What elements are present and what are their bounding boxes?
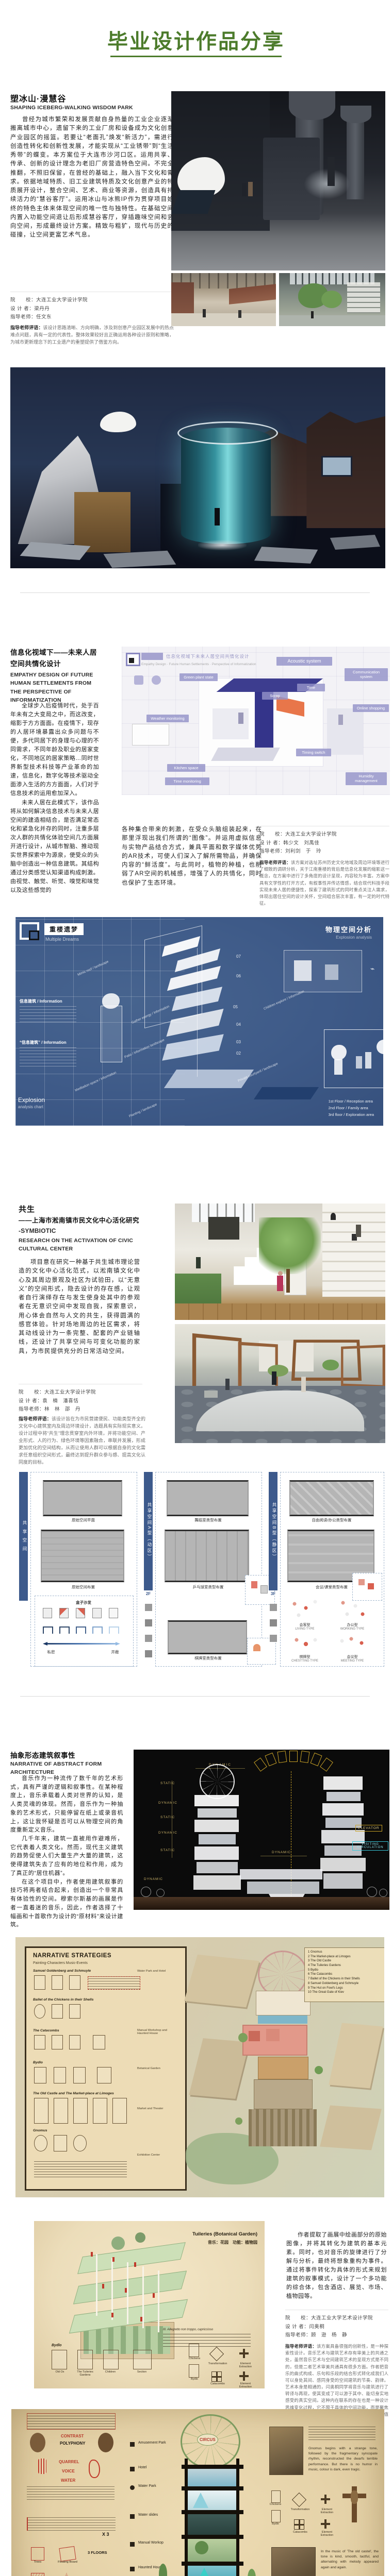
diagram-empathy-collage: 信息化视域下未来人居空间共情化设计 Empathy Design · Futur… [122,647,390,795]
project1-body: 曾经为城市繁荣和发展贡献自身热量的工业企业逐渐搬离城市中心，遗留下来的工业厂房和… [10,115,174,240]
gallery-floors [347,282,380,313]
header-chip [141,653,163,660]
render-culture-center-atrium [175,1204,385,1320]
tuileries-title: Tuileries (Botanical Garden) [192,2231,257,2237]
strategy-box-6a [34,2135,47,2151]
credit-advisor: 指导老师：顾 逊 杨 静 [285,2331,388,2340]
d-transformation-diamond [292,2493,306,2507]
plan-3a [289,1480,374,1516]
type2-en-label: WORKING TYPE [331,1628,374,1631]
figure-silhouette [215,508,220,526]
quote-box [132,724,169,745]
poster-tower-section: CONTRAST POLYPHONY QUARREL VOICE WATER X… [11,2409,384,2576]
chair-grey-1 [260,1585,268,1594]
stone-bench [204,1391,218,1398]
strategy-box-5c [73,2098,88,2124]
project2-body-left: 全球步入后疫情时代，处于百年未有之大变局之中，而这改变，缩影于方方面面。在疫情下… [10,702,99,895]
tower-l-2 [198,1808,237,1818]
columns [96,2254,97,2316]
render-night-plaza [10,367,385,568]
poster-para1: Gnomus begins with a strange tone, follo… [308,2446,378,2472]
advisor-value: 顾 逊 杨 静 [311,2332,347,2338]
tower-r-8 [323,1873,363,1889]
project4-body-c: 在这个项目中，作者使用建筑叙事的技巧将两者结合起来，创造出一个非常具有体验性的空… [10,1878,123,1929]
chair-red-2 [368,1583,374,1589]
bp-detail-box [294,960,312,981]
warm-glass-lobby [74,492,130,552]
diagram-black-towers: STATIC DYNAMIC STATIC DYNAMIC STATIC DYN… [134,1750,389,1910]
dark-mural [208,1217,239,1240]
comment-label: 指导老师评语： [259,860,291,865]
icon-label-amusement: Amusement Park [138,2441,166,2445]
caption-5: Exhibition Center [137,2154,176,2157]
wood-floor [175,1303,385,1320]
label-dynamic-2: DYNAMIC [158,1831,177,1835]
iso-figure-1 [238,713,243,724]
walkway [279,315,385,326]
icon-water-park [130,2485,135,2490]
advisor-label: 指导老师： [259,849,285,854]
credit-designer: 设 计 者：梁丹丹 [10,305,174,314]
strategy-box-6b [54,2135,67,2151]
music-score-red-box [88,1976,140,1990]
plan-bar-3f: 3F [269,1591,277,1596]
strategy-box-4d [97,2067,111,2083]
strategy-box-5a [34,2098,48,2124]
project3-body-p: 项目意在研究一种基于共生城市理论营造的文化中心活化范式，以淞南镇文化中心及其周边… [19,1258,140,1356]
project2-body-c: 各种集合带来的刺激，在受众头脑组装起来，在那里浮现出我们所谓的“图像”。并运用虚… [122,825,262,888]
tree-outline-4 [379,1889,387,1897]
cluster-meeting [336,1634,369,1654]
city-block-4 [320,2106,382,2150]
sofa-iso-5 [109,1608,118,1618]
project4-body: 音乐作为一种流传了数千年的艺术形式，具有严谨的逻辑和叙事性。在某种程度上，音乐承… [10,1774,123,1929]
mountains-box [31,2573,44,2576]
d-extraction-cross-2 [321,2519,330,2529]
sofa-iso-1 [43,1608,52,1618]
caption-3: Botanical Garden [137,2067,176,2070]
project1-body-p: 曾经为城市繁荣和发展贡献自身热量的工业企业逐渐搬离城市中心，遗留下来的工业厂房和… [10,115,174,240]
catacombs-label: Catacombs [207,2382,228,2385]
d-transformation-label: Transformation [290,2508,311,2511]
open-label: 开敞 [105,1649,125,1655]
circus-label: CIRCUS [197,2434,218,2446]
bracket-3 [76,1626,86,1634]
trees-box [31,2547,44,2561]
bp-info2: “信息建筑” / Information [20,1040,67,1045]
d-bydlo-label: Bydlo [267,2522,284,2526]
bp-axis-line [197,948,198,1077]
credit-designer: 设 计 者：韩少文 刘禹佳 [259,839,389,848]
type4-zh: 会议型 [347,1655,358,1659]
credit-designer: 设 计 者：袁 楠 潘喜恬 [19,1397,142,1406]
chip-time: Time [297,684,325,691]
project2-body-a: 全球步入后疫情时代，处于百年未有之大变局之中，而这改变，缩影于方方面面。在疫情下… [10,702,99,799]
project4-body-a: 音乐作为一种流传了数千年的艺术形式，具有严谨的逻辑和叙事性。在某种程度上，音乐承… [10,1774,123,1835]
pictogram-meeting [270,1604,277,1611]
privacy-label: 私密 [41,1649,61,1655]
school-value: 大连工业大学设计学院 [285,832,337,837]
tower-fill-pool [188,2469,236,2486]
plan-cap-2a: 舞蹈室类型布置 [155,1517,261,1523]
pictogram-reading [270,1619,277,1626]
plan-1a [43,1480,122,1516]
strategies-title: NARRATIVE STRATEGIES [33,1953,111,1959]
strategy-box-3b [52,2035,63,2049]
red-figures [91,2252,93,2257]
chip-scrap: Scrap [262,692,288,700]
bp-num-04: 04 [236,1022,241,1027]
project4-body-b: 几千年来，建筑一直被用作避难所，它代表着人类文化。然而，现代主义建筑的趋势促使人… [10,1835,123,1878]
caption-2: Manual Workshop and Haunted House [137,2029,176,2035]
arch-block-7 [320,1757,333,1771]
pictogram-pingpong [145,1635,152,1642]
list-item-3: 3 The Old Castle [308,1959,384,1963]
project2-body-b: 未来人居在此模式下，该作品将从如何解决信息技术与未来人居空间的建造相结合，是否满… [10,799,99,895]
tower-frame-right [236,2459,239,2576]
project2-title-en: EMPATHY DESIGN OF FUTURE HUMAN SETTLEMEN… [10,671,94,704]
collage-header: 信息化视域下未来人居空间共情化设计 [166,653,250,659]
sofa-iso-2 [59,1608,69,1618]
transformation-label: Transformation [207,2362,228,2365]
walking-figure-1 [272,1371,276,1385]
bracket-4 [92,1626,103,1634]
slab-1 [77,2242,186,2274]
plan-2c [168,1620,247,1654]
type3-zh: 棋牌型 [300,1655,311,1659]
list-item-5: 5 Bydlo [308,1968,384,1973]
strategy-box-5d [93,2098,107,2124]
strategy-box-1a [34,1975,45,1990]
ground-strip [134,1897,389,1910]
figure-upper [356,1225,361,1237]
type4-label: 会议型 [331,1654,374,1659]
tower-fill-haunted [188,2514,236,2535]
tower-r-1 [323,1776,363,1790]
logo-inner [129,658,134,663]
extraction-label-1: Element Extraction [234,2362,257,2368]
project1-comment: 指导老师评语：该设计思路清晰、方向明确，涉及到创意产业园区发展中的热点难点问题，… [10,325,174,346]
pink-box-1 [249,2031,260,2041]
tower-top-box [256,1991,311,2015]
comment-label: 指导老师评语： [285,2344,317,2349]
chip-communication: Communication system [345,668,388,681]
project3-body: 项目意在研究一种基于共生城市理论营造的文化中心活化范式，以淞南镇文化中心及其周边… [19,1258,140,1356]
school-value: 大连工业大学艺术设计学院 [311,2315,373,2321]
label-dynamic-3: DYNAMIC [144,1877,163,1881]
sofa-iso-3 [76,1608,85,1618]
cluster-living [288,1598,321,1620]
chip-online-shopping: Online shopping [353,704,389,712]
bracket-5 [109,1626,119,1634]
chair-pink [358,1579,365,1585]
d-chickens-box [271,2490,281,2503]
credit-school: 院 校：大连工业大学设计学院 [259,831,389,839]
iso-wall-dark [255,692,273,749]
strategy-box-5b [54,2098,68,2124]
designer-label: 设 计 者： [285,2324,309,2330]
row-header-2: Ballet of the Chickens in their Shells [33,1998,93,2002]
bp-planter-3 [365,1052,371,1069]
water-label: WATER [61,2478,75,2483]
row-label-3: Children [100,2370,121,2374]
arch-block-1 [254,1757,267,1771]
chip-green-plant: Green plant state [179,673,218,681]
diagram-shared-space-plans: 共 享 空 间 原始空间平面 原始空间布置 盒子沙发 私密 开敞 共享空间A型（… [18,1472,384,1668]
chip-acoustic: Acoustic system [276,657,332,666]
wifi-icon: ⌁ [370,964,374,973]
credit-school: 院 校：大连工业大学设计学院 [19,1388,142,1397]
tower-slab-3 [182,2510,243,2514]
credit-designer: 设 计 者：闫奥桐 [285,2323,388,2332]
icon-water-slides [130,2514,135,2519]
slab-2 [73,2270,187,2304]
bracket-1 [43,1626,53,1634]
city-block-3 [329,2023,383,2089]
pictogram-chess [145,1650,152,1657]
magazine-page: 毕业设计作品分享 塑冰山·漫慧谷 SHAPING ICEBERG-WALKING… [0,0,392,2576]
project2-body-right: 各种集合带来的刺激，在受众头脑组装起来，在那里浮现出我们所谓的“图像”。并运用虚… [122,825,262,888]
list-item-6: 6 The Catacombs [308,1972,384,1977]
tower-slab-5 [182,2562,243,2566]
project2-comment: 指导老师评语：该方案对选址苏州历史文化地域及周边环境等进行了细致的调研分析，关于… [259,859,389,907]
label-dynamic-1: DYNAMIC [158,1801,177,1805]
painting-castle [271,2547,316,2576]
row-header-3: The Catacombs [33,2029,59,2032]
tree-outline-2 [156,1889,165,1897]
bydlo-box-4 [133,2350,152,2369]
window-right [321,456,352,477]
strategy-box-1b [52,1975,63,1990]
bp-num-05: 05 [233,1005,238,1009]
garden-tree [195,2541,208,2554]
poster-tuileries: Tuileries (Botanical Garden) 音乐：花园 功能：植物… [34,2221,265,2388]
bp-info1: 信息建筑 / Information [20,998,62,1004]
row-header-5: The Old Castle and The Market-place at L… [33,2092,114,2095]
cluster-working [336,1598,369,1620]
strategy-box-4b [54,2067,66,2083]
cylinder-ring [177,421,278,445]
icon-label-water-slides: Water slides [138,2513,158,2517]
figure-head [278,1271,283,1276]
tower-r-3 [322,1803,364,1816]
bp-title: 重楼遗梦 [44,923,84,935]
project4-body-right: 作者提取了画展中绘画部分的原始图像，并将其转化为建筑的基本元素。同时，也对音乐的… [286,2231,387,2301]
bp-explosion: Explosion [18,1096,45,1104]
school-label: 院 校： [10,297,36,303]
poster-para2: In the music of 'The old castel', the to… [321,2549,379,2570]
street-tree-2 [248,2569,256,2576]
poster-tree-1 [238,2033,248,2042]
list-item-8: 8 Samuel Goldenberg and Schmuyle [308,1981,384,1986]
roof-tree-1 [111,2236,125,2250]
strategy-box-2b [52,2004,63,2019]
type1-label: 会客型 [283,1622,326,1628]
sofa-iso-4 [92,1608,102,1618]
d-extraction-label: Element Extraction [316,2508,338,2514]
advisor-label: 指导老师： [285,2332,311,2338]
pink-box-2 [266,2029,280,2041]
base-trees [84,2326,170,2354]
elevator-label: ELEVATOR [355,1825,382,1832]
tower-l-6 [197,1862,238,1873]
bp-floor-3: 3rd floor / Exploration area [329,1112,374,1118]
project1-title-en: SHAPING ICEBERG-WALKING WISDOM PARK [10,104,165,112]
school-label: 院 校： [19,1389,44,1395]
caption-1: Water Park and Hotel [137,1969,176,1974]
row-header-4: Bydlo [33,2061,43,2064]
walking-figure-3 [225,1379,230,1390]
chickens-box [189,2344,199,2357]
bp-tree [102,993,120,1009]
label-static-1: STATIC [160,1782,175,1785]
list-item-1: 1 Gnomus [308,1950,384,1955]
render-atrium-court [279,273,385,326]
strategy-box-6c [73,2135,87,2151]
tower-wood-deck [258,2057,308,2079]
tower-slab-2 [182,2486,243,2490]
plan-cap-2c: 棋牌室类型布置 [155,1655,261,1661]
bydlo-label: Bydlo [187,2378,202,2381]
tower-base [249,2109,317,2146]
column-capital-2 [340,106,371,123]
arch-block-2 [265,1753,276,1766]
pictogram-dance [145,1604,152,1611]
d-catacombs-label: Catacombs [290,2531,311,2534]
walking-figure-2 [301,1377,306,1392]
strategy-box-5e [112,2098,127,2124]
strategy-box-2a [34,2004,45,2019]
plan-cap-3a: 自由阅读/办公类型布置 [280,1517,383,1523]
project4-credits: 院 校：大连工业大学艺术设计学院 设 计 者：闫奥桐 指导老师：顾 逊 杨 静 [285,2310,388,2340]
floors-label: 3 FLOORS [88,2550,107,2555]
comment-label: 指导老师评语： [10,325,43,330]
chip-humidity: Humidity management [346,772,387,785]
chickens-label: Chickens [187,2357,202,2360]
tower-slab-1 [182,2465,243,2469]
bydlo-box-1 [52,2350,67,2369]
project3-credits: 院 校：大连工业大学设计学院 设 计 者：袁 楠 潘喜恬 指导老师：林 林 邵 … [19,1384,142,1414]
portrait-2 [98,2433,113,2452]
d-chickens-label: Chickens [267,2503,284,2506]
movement-list: 1 Gnomus 2 The Market-place at Limoges 3… [304,1947,384,2002]
type4-en-label: MEETING TYPE [331,1659,374,1663]
cylinder-sketch [38,2459,46,2474]
bp-planter-1 [334,1059,342,1075]
polyphony-label: POLYPHONY [60,2441,86,2446]
tower-l-5 [194,1846,239,1860]
column-capital-1 [289,91,335,120]
bp-info2-lines [20,1046,76,1066]
pyramid-box [60,2573,73,2576]
person-3 [311,311,314,318]
bp-right-title: 物理空间分析 [325,924,372,934]
comment-text: 该方案对选址苏州历史文化地域及周边环境等进行了细致的调研分析，关于江南重楼的背后… [259,860,389,906]
bp-info1-lines [20,1005,76,1022]
advisor-value: 任文东 [36,314,52,320]
poster-tree-2 [315,2066,323,2074]
collage-subheader: Empathy Design · Future Human Settlement… [141,663,256,666]
plan-bar-2f: 2F [144,1591,153,1596]
strategy-box-3a [34,2035,45,2049]
iso-volume-2 [327,708,363,755]
strategy-box-3d [93,2035,105,2049]
transformation-diamond [209,2347,224,2361]
chip-time-monitoring: Time monitoring [165,777,209,785]
project4-title-zh: 抽象形态建筑叙事性 [10,1750,75,1760]
music-block-3 [27,2517,116,2531]
type3-label: 棋牌型 [283,1654,326,1659]
figure-1 [242,183,247,196]
trees-label: Trees [29,2561,46,2564]
bp-subtitle: Multiple Dreams [45,937,79,942]
podium-1 [240,1869,322,1879]
credit-school: 院 校：大连工业大学艺术设计学院 [285,2314,388,2323]
school-value: 大连工业大学设计学院 [36,297,88,303]
shrub-1 [268,1365,289,1377]
bp-logo-inner [29,930,39,940]
bracket-2 [59,1626,70,1634]
music-caption: III. Allegretto non troppo, capriccioso [163,2328,213,2331]
plan-2a [167,1480,249,1516]
chip-weather: Weather monitoring [146,715,189,722]
table-icon [253,1644,260,1651]
bydlo-row-title: Bydlo [52,2344,61,2347]
street-tree-1 [159,2564,167,2576]
designer-label: 设 计 者： [10,306,34,312]
render-industrial-hall [171,273,276,326]
d-extraction-cross [321,2495,330,2504]
vase-1 [331,1213,336,1220]
x3-label: X 3 [102,2532,109,2537]
city-block-1 [184,1955,259,2008]
tower-r-7 [320,1858,366,1871]
row-label-1: Old Ox [50,2370,70,2374]
bp-explosion2: analysis chart [18,1105,43,1109]
figure-stairs [196,1257,201,1268]
icon-label-water-park: Water Park [138,2484,156,2488]
bp-floor-2: 2nd Floor / Family area [329,1105,374,1112]
extraction-cross-2 [239,2371,249,2381]
comment-text: 该设计旨在为市民营建便民、功能类型齐全的文化中心建筑室内及周边环境设计，选题具有… [19,1416,145,1465]
bp-num-03: 03 [236,1040,241,1044]
leaf-icon [134,675,143,685]
d-bydlo-box [271,2510,281,2522]
advisor-label: 指导老师： [10,314,36,320]
label-static-2: STATIC [160,1816,175,1819]
project3-title-en2: RESEARCH ON THE ACTIVATION OF CIVIC CULT… [19,1236,148,1253]
list-item-10: 10 The Great Gate of Kiev [308,1990,384,1995]
comment-label: 指导老师评语： [19,1416,52,1421]
advisor-value: 刘利剑 于 玲 [285,849,321,854]
credit-school: 院 校：大连工业大学设计学院 [10,296,174,305]
icon-hotel [130,2467,135,2471]
type1-zh: 会客型 [300,1623,311,1627]
bp-right-subtitle: Explosion analysis [336,935,372,940]
bracket-line-mid [260,1856,307,1856]
iso-counter [211,748,280,761]
school-label: 院 校： [285,2315,311,2321]
crucifix-figure [351,2490,358,2504]
strategy-box-3c [69,2035,80,2049]
section-divider-2 [20,1696,370,1697]
person-1 [203,309,206,317]
plan-2b [165,1530,249,1582]
music-block-top [27,2413,116,2430]
icon-haunted [130,2567,135,2571]
bp-planting-box [324,1029,383,1088]
strategy-box-2c [69,2004,80,2019]
